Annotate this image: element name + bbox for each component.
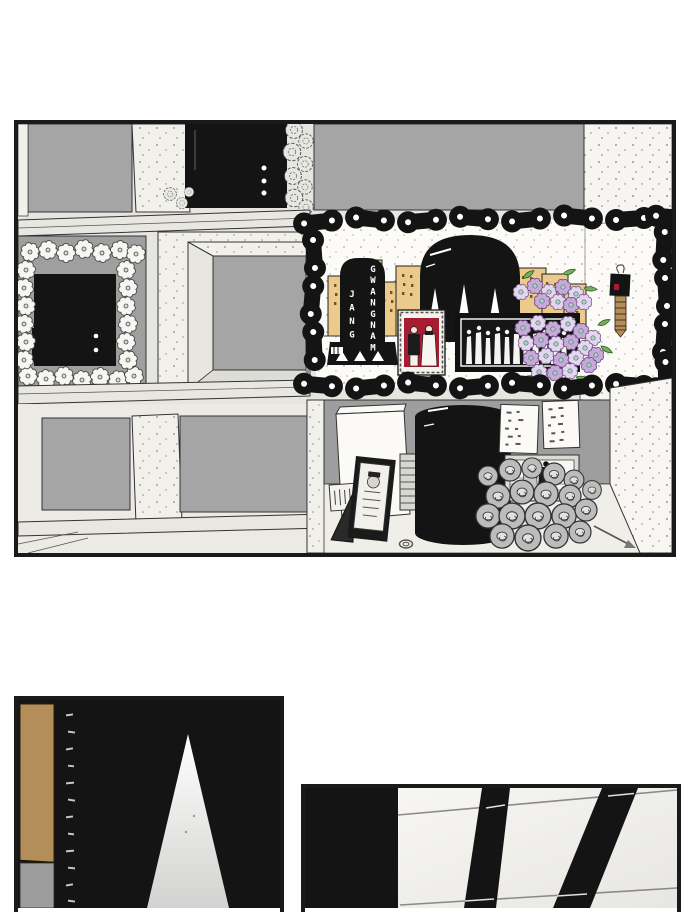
panel-columbarium: JANG GWANGNAM bbox=[14, 120, 676, 557]
dark-wall-block bbox=[305, 788, 398, 908]
photo-small-red bbox=[398, 310, 445, 375]
panel-overhead-beams bbox=[301, 784, 681, 912]
dark-background bbox=[18, 700, 280, 908]
plaque-name-left-column: JANG bbox=[347, 290, 356, 344]
niche-above-gray bbox=[314, 124, 584, 210]
dark-room-art bbox=[18, 700, 280, 908]
niche-flower-garland-urn bbox=[18, 236, 146, 392]
wood-post bbox=[20, 704, 54, 908]
bottom-row-left bbox=[18, 400, 326, 553]
panel-dark-room bbox=[14, 696, 284, 912]
memorial-lower-shelf bbox=[324, 378, 672, 553]
columbarium-art bbox=[18, 124, 672, 553]
niche-center-empty bbox=[158, 232, 310, 392]
overhead-beams-art bbox=[305, 788, 677, 908]
plaque-name-right-column: GWANGNAM bbox=[368, 265, 377, 355]
webtoon-page: JANG GWANGNAM bbox=[0, 0, 689, 912]
niche-top-dark-urn bbox=[185, 124, 287, 208]
niche-top-left-empty bbox=[18, 124, 132, 216]
